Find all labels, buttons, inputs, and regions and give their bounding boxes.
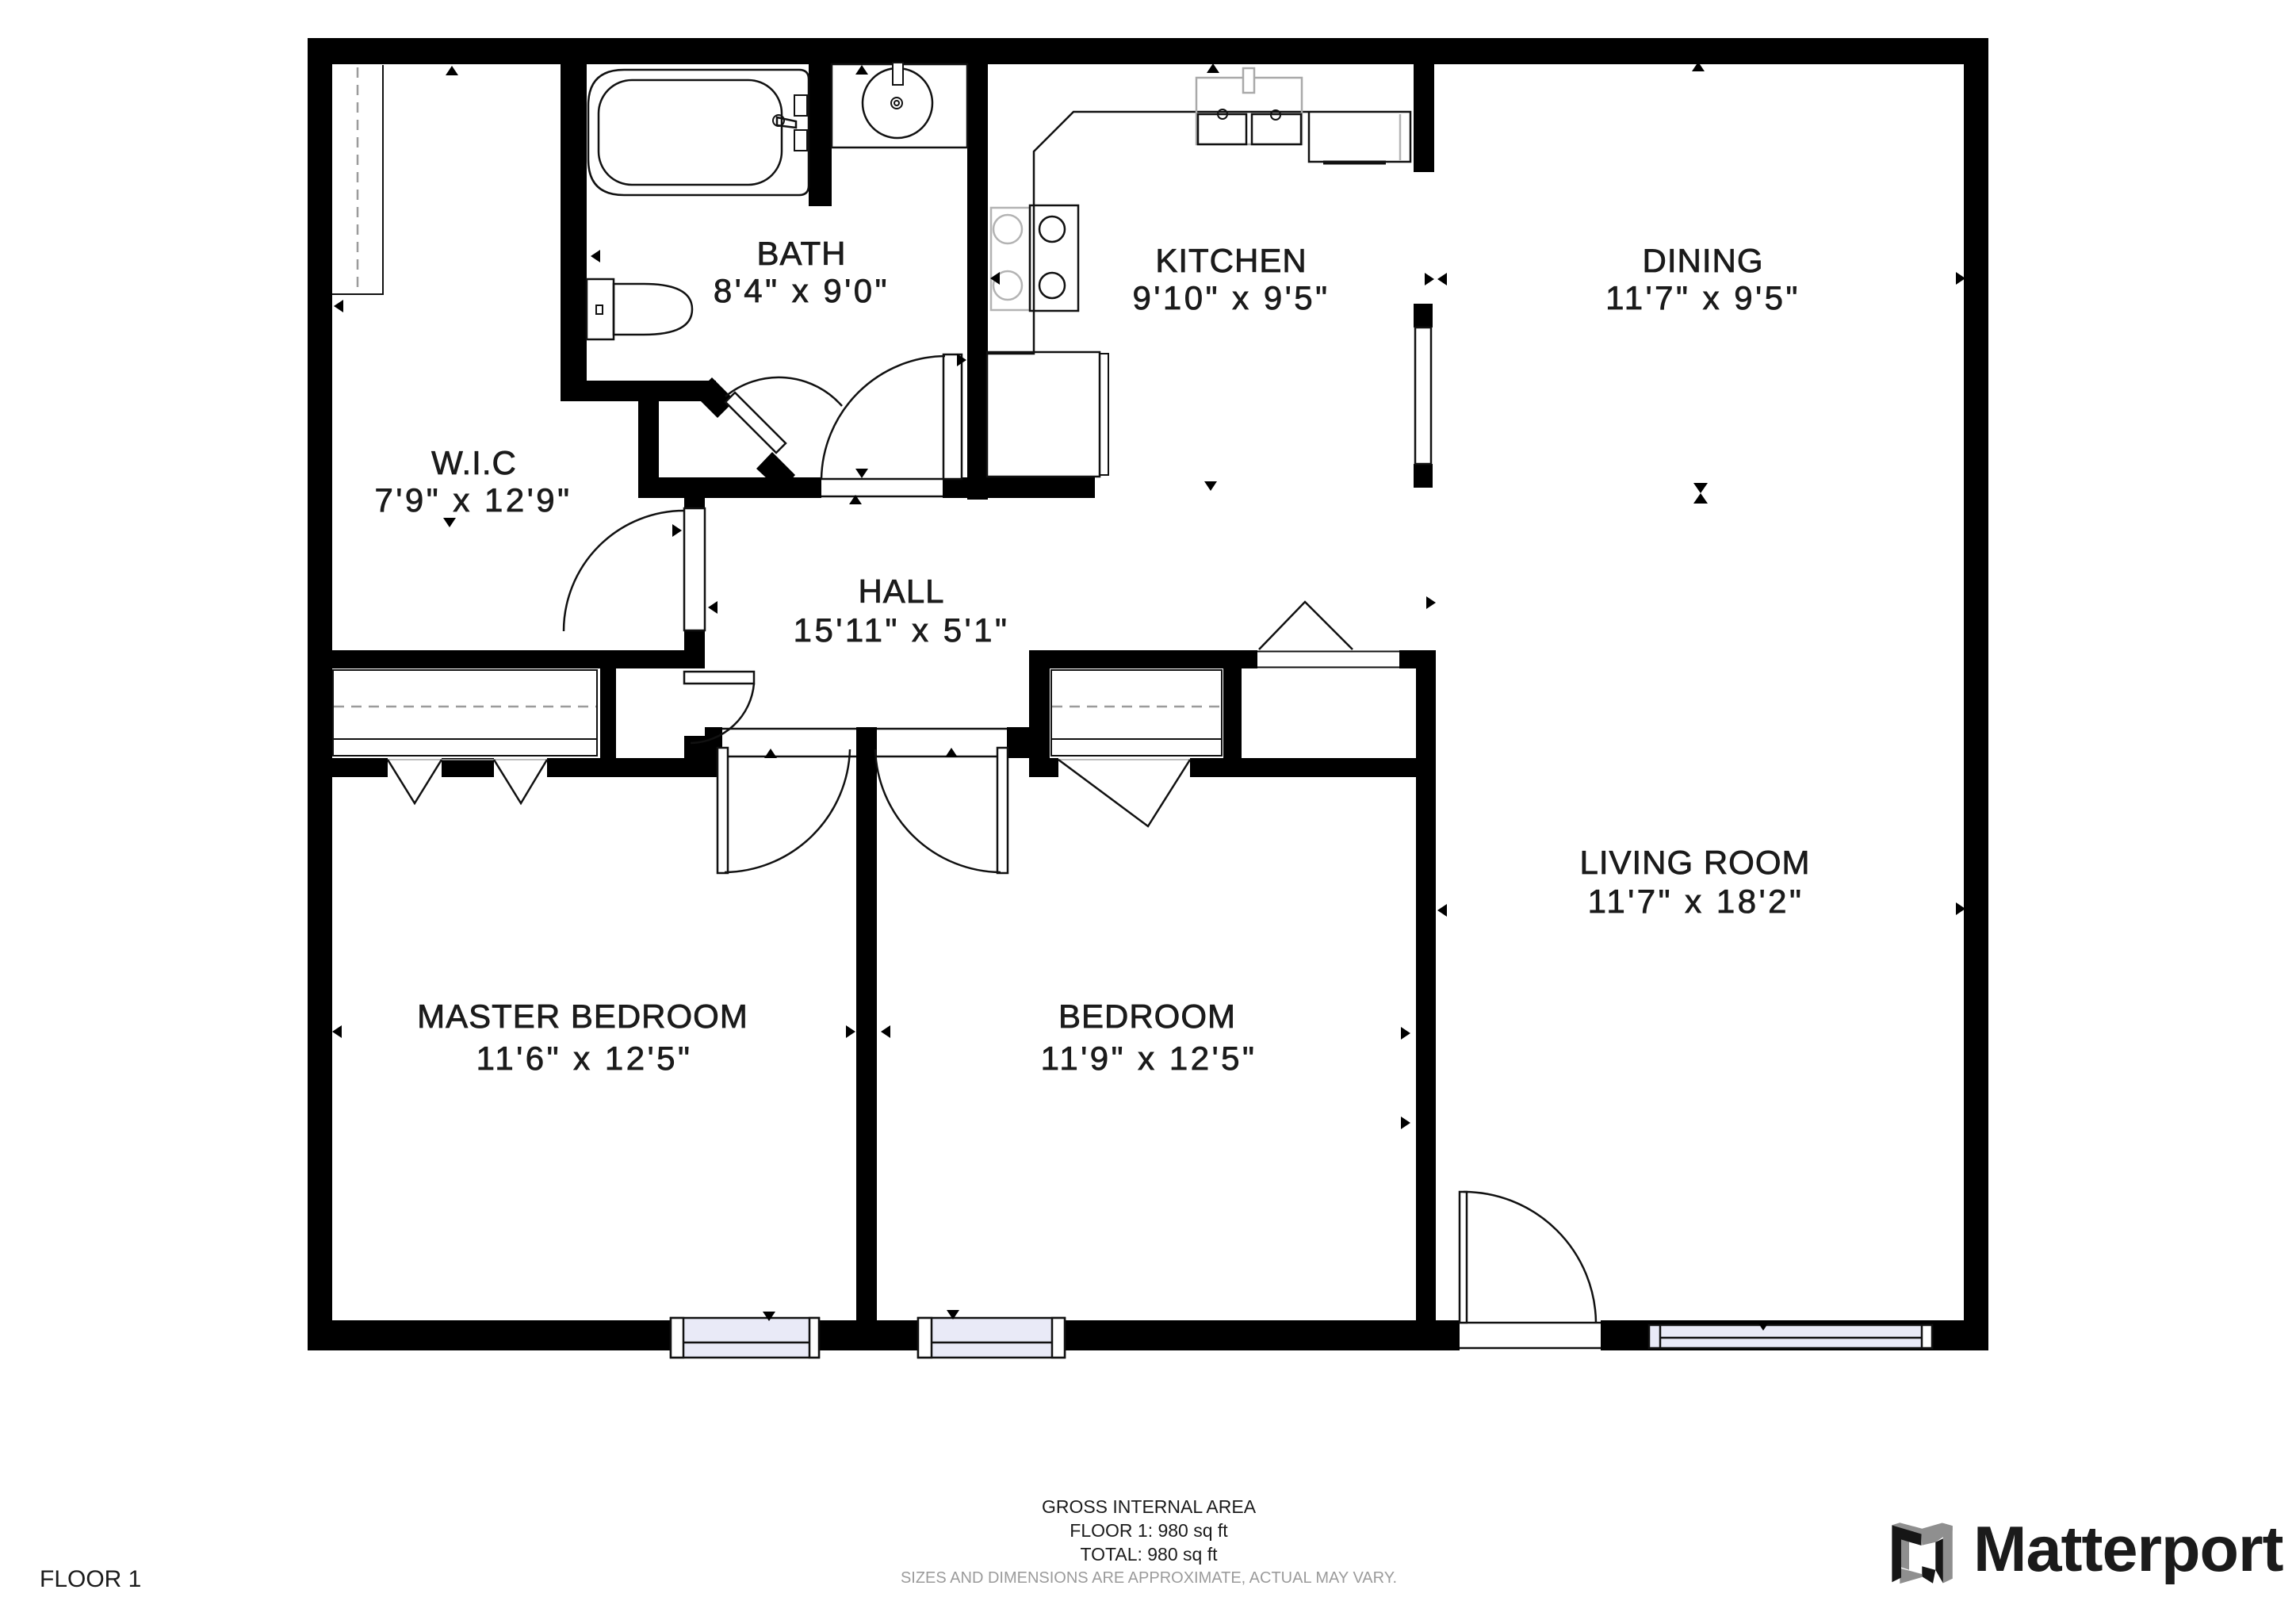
svg-text:15'11" x 5'1": 15'11" x 5'1" — [794, 611, 1010, 649]
svg-text:7'9" x 12'9": 7'9" x 12'9" — [375, 481, 572, 519]
svg-text:FLOOR 1: FLOOR 1 — [40, 1566, 141, 1592]
svg-text:W.I.C: W.I.C — [431, 444, 517, 481]
svg-text:BEDROOM: BEDROOM — [1058, 998, 1236, 1035]
svg-text:TOTAL: 980 sq ft: TOTAL: 980 sq ft — [1080, 1544, 1218, 1565]
svg-text:DINING: DINING — [1643, 242, 1764, 279]
svg-text:11'9" x 12'5": 11'9" x 12'5" — [1041, 1040, 1257, 1077]
svg-text:11'6" x 12'5": 11'6" x 12'5" — [476, 1040, 693, 1077]
svg-text:Matterport: Matterport — [1973, 1514, 2283, 1585]
svg-text:11'7" x 9'5": 11'7" x 9'5" — [1605, 279, 1800, 316]
svg-text:KITCHEN: KITCHEN — [1155, 242, 1307, 279]
svg-text:BATH: BATH — [757, 235, 847, 272]
svg-text:MASTER BEDROOM: MASTER BEDROOM — [417, 998, 748, 1035]
svg-text:8'4" x 9'0": 8'4" x 9'0" — [714, 272, 890, 309]
svg-text:LIVING ROOM: LIVING ROOM — [1579, 844, 1810, 881]
svg-text:GROSS INTERNAL AREA: GROSS INTERNAL AREA — [1042, 1496, 1257, 1517]
svg-text:9'10" x 9'5": 9'10" x 9'5" — [1133, 279, 1330, 316]
svg-text:HALL: HALL — [858, 573, 944, 610]
svg-text:SIZES AND DIMENSIONS ARE APPRO: SIZES AND DIMENSIONS ARE APPROXIMATE, AC… — [901, 1569, 1397, 1587]
svg-text:FLOOR 1: 980 sq ft: FLOOR 1: 980 sq ft — [1070, 1520, 1228, 1541]
svg-text:11'7" x 18'2": 11'7" x 18'2" — [1588, 883, 1804, 920]
